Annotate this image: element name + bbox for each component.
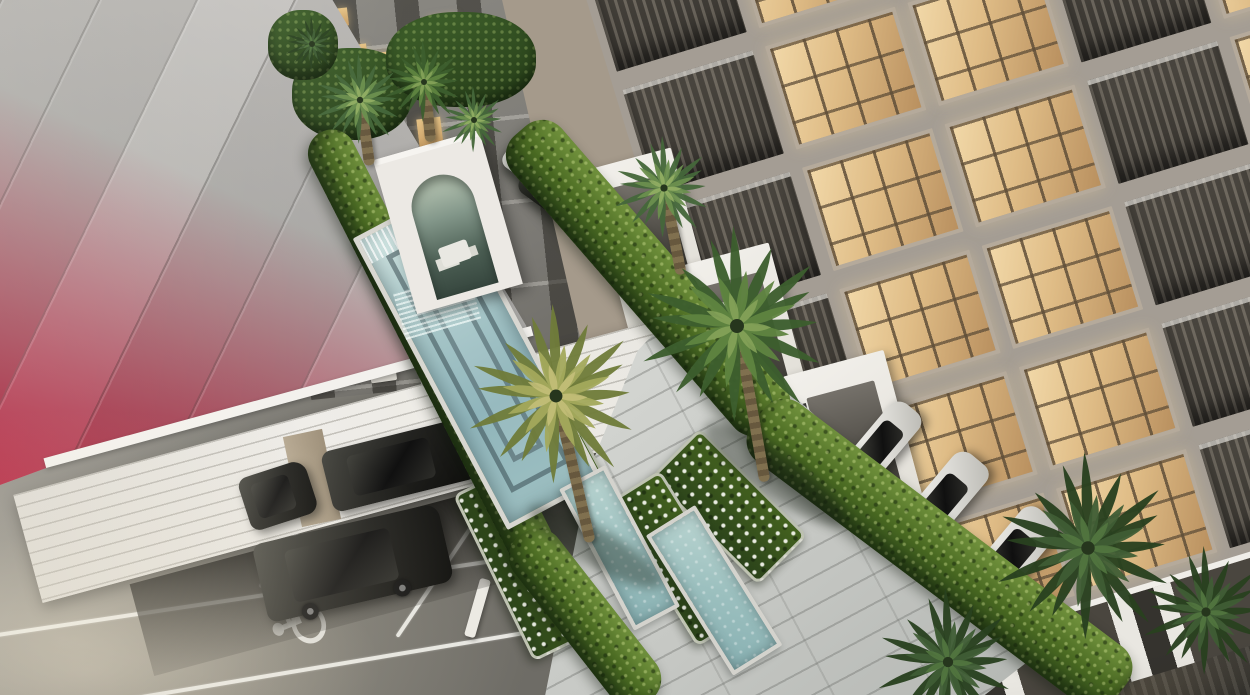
palm-tree-crown bbox=[284, 16, 340, 72]
palm-tree-crown bbox=[440, 86, 508, 154]
architectural-render-scene bbox=[0, 0, 1250, 695]
palm-tree-crown bbox=[874, 588, 1022, 695]
car-glass bbox=[345, 437, 436, 497]
car-glass bbox=[284, 527, 400, 602]
palm-tree-crown bbox=[637, 226, 837, 426]
palm-tree-crown bbox=[1140, 546, 1250, 678]
palm-tree-crown bbox=[464, 304, 648, 488]
palm-tree-crown bbox=[612, 136, 716, 240]
car-glass bbox=[250, 473, 298, 520]
arch-niche bbox=[404, 167, 499, 300]
